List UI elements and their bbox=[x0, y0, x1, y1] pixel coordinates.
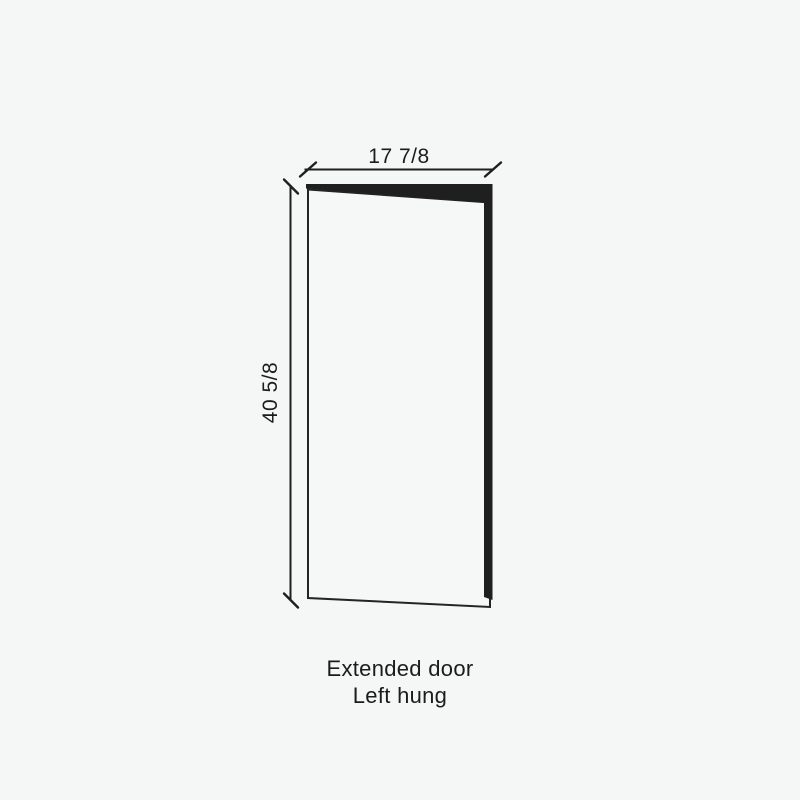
caption: Extended door Left hung bbox=[0, 656, 800, 709]
door-drawing bbox=[306, 184, 493, 607]
door-diagram: 17 7/8 40 5/8 Extended door Left hung bbox=[0, 0, 800, 800]
height-dimension-label: 40 5/8 bbox=[259, 362, 282, 423]
width-dimension-label: 17 7/8 bbox=[368, 145, 429, 168]
caption-line-1: Extended door bbox=[0, 656, 800, 683]
door-front-face bbox=[308, 190, 490, 608]
caption-line-2: Left hung bbox=[0, 683, 800, 710]
